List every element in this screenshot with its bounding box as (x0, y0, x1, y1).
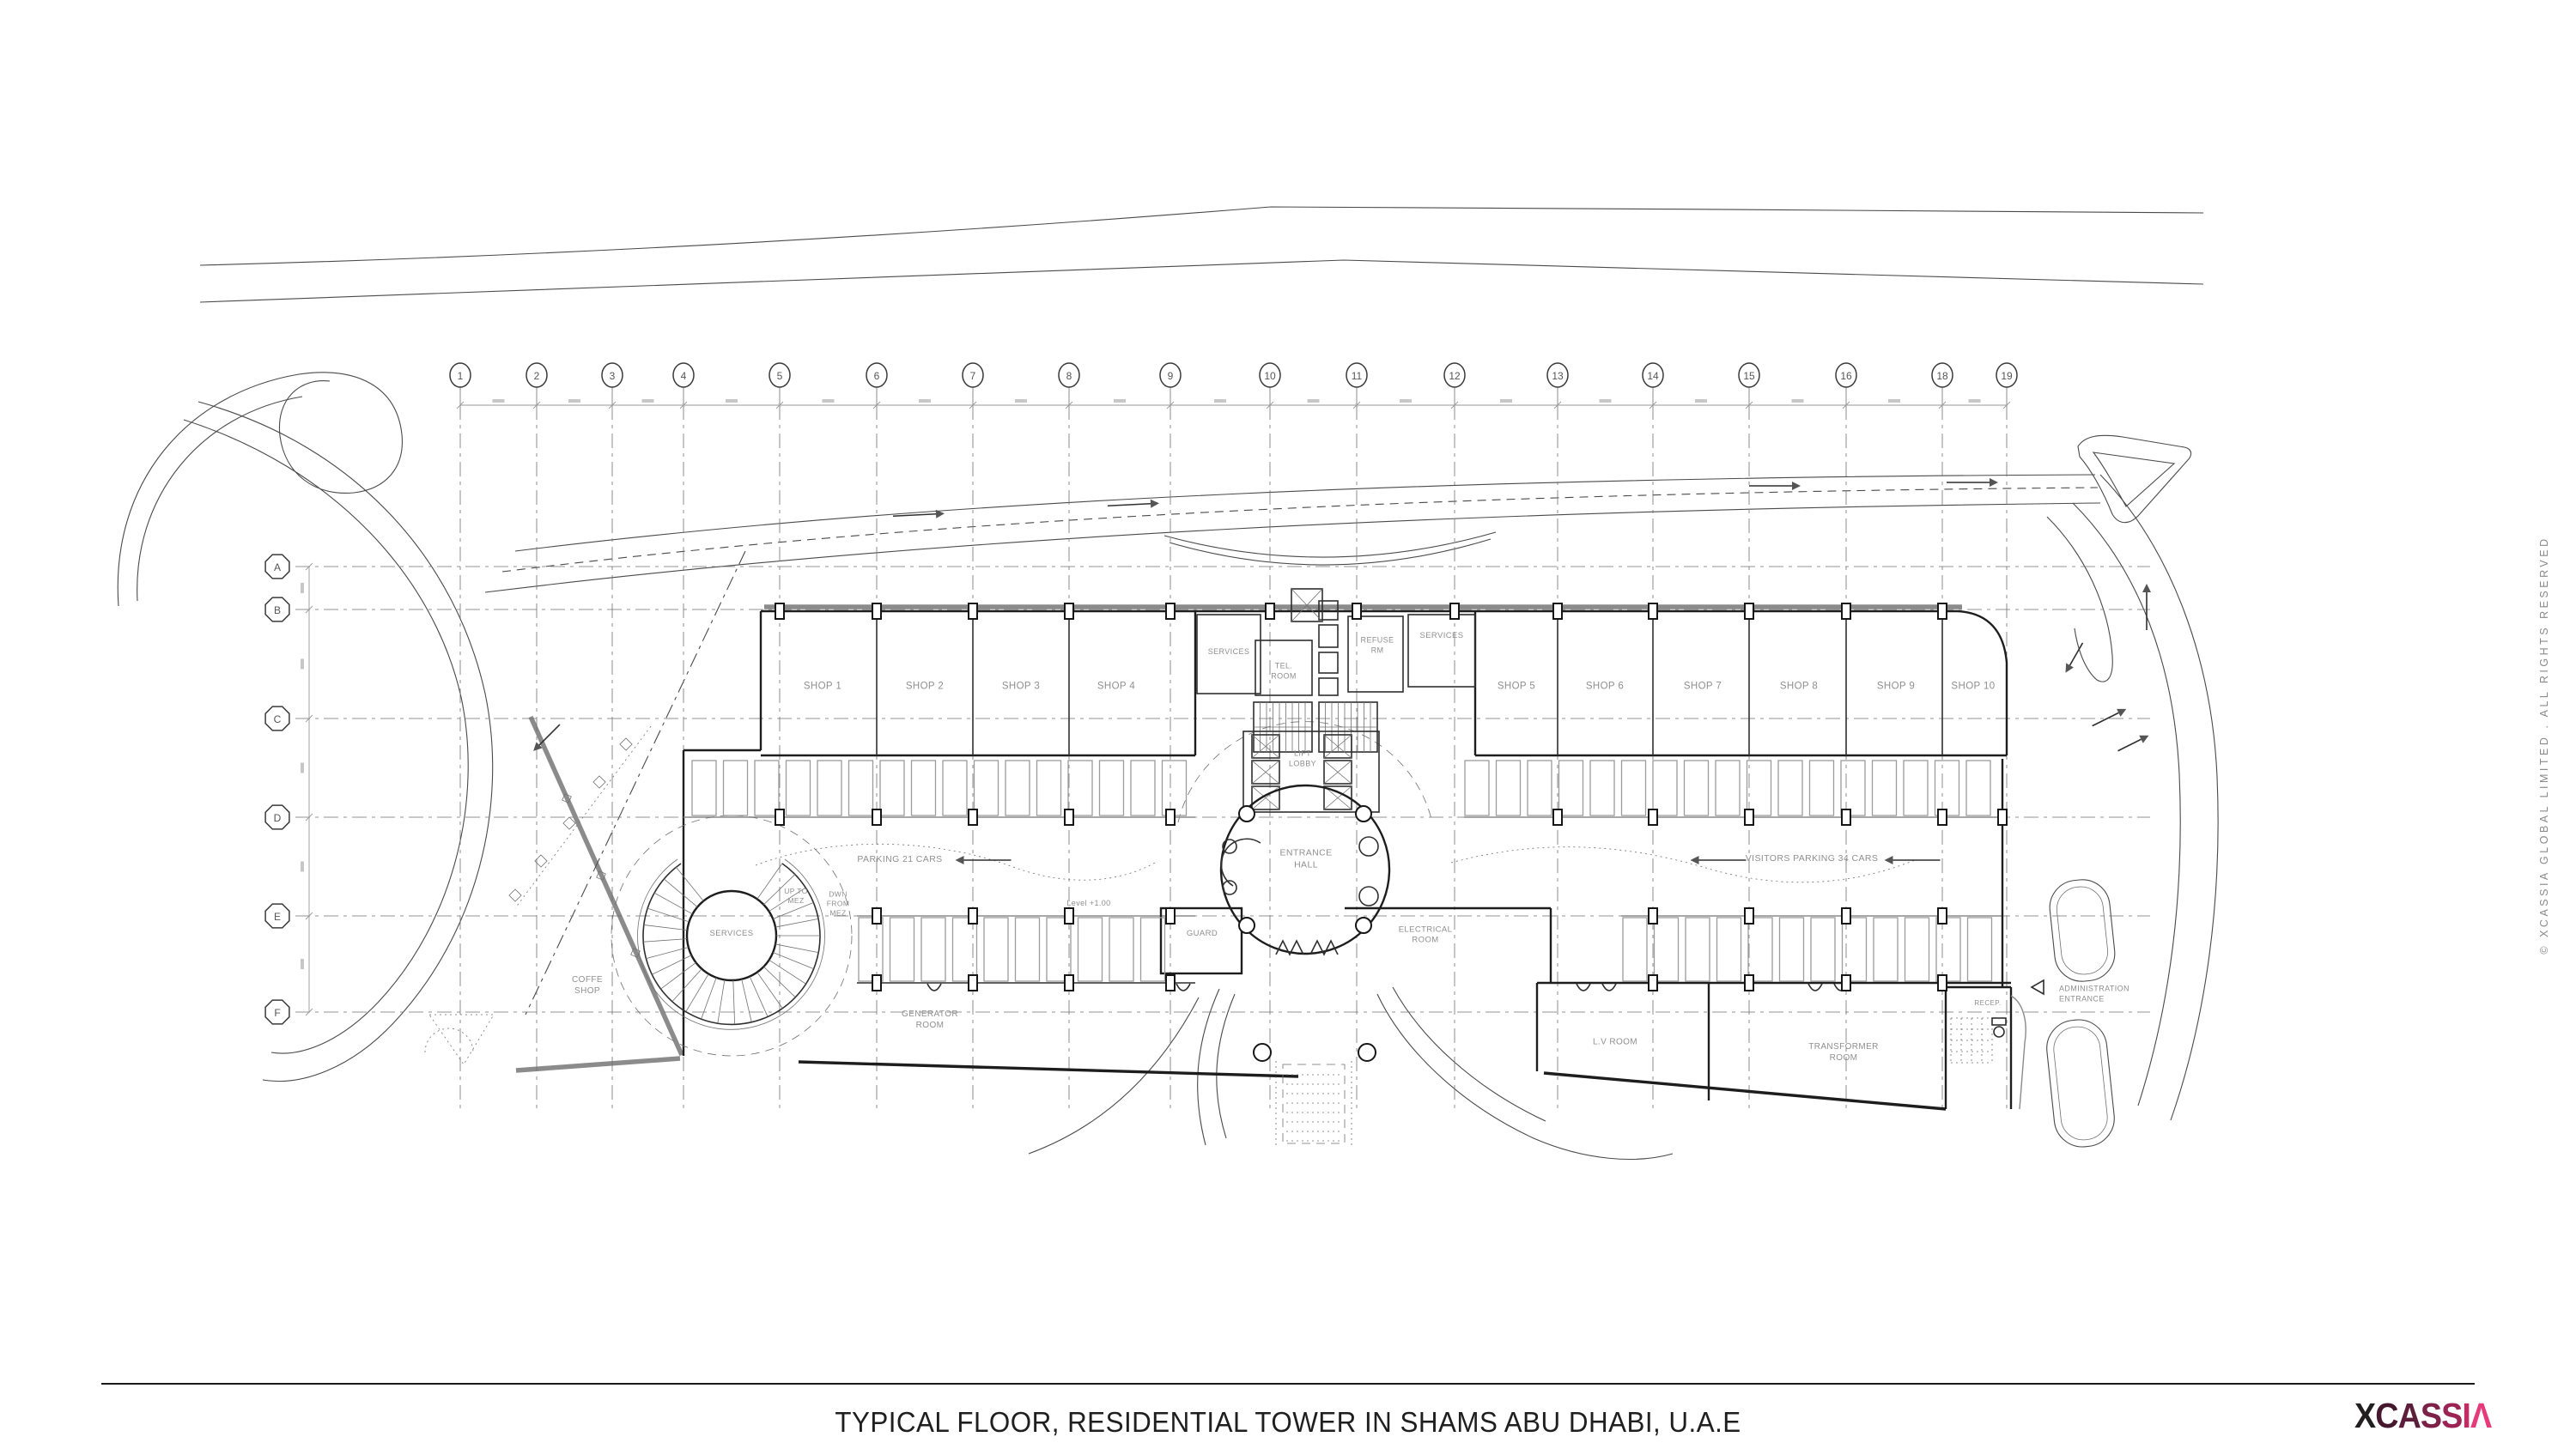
grid-column-bubble: 3 (610, 370, 616, 382)
footer-divider (101, 1383, 2475, 1385)
grid-rows: ABCDEF (265, 555, 2150, 1024)
reception-detail (1951, 980, 2044, 1064)
grid-row-bubble: D (274, 812, 282, 824)
grid-column-bubble: 16 (1840, 370, 1852, 382)
grid-column-bubble: 8 (1066, 370, 1072, 382)
grid-column-bubble: 18 (1936, 370, 1948, 382)
grid-column-bubble: 19 (2001, 370, 2013, 382)
brand-logo-char: X (2354, 1396, 2375, 1435)
building-walls (683, 607, 2026, 1109)
grid-column-bubble: 13 (1552, 370, 1564, 382)
parking-stalls (692, 761, 1992, 991)
column-markers (775, 603, 2007, 991)
brand-logo-char: C (2375, 1396, 2397, 1435)
grid-row-bubble: C (274, 713, 282, 725)
grid-column-bubble: 7 (970, 370, 976, 382)
spiral-stair (611, 815, 852, 1056)
grid-column-bubble: 11 (1352, 370, 1363, 382)
site-roads (118, 207, 2218, 1159)
brand-logo-char: S (2441, 1396, 2462, 1435)
brand-logo-char: S (2421, 1396, 2441, 1435)
sheet-title: TYPICAL FLOOR, RESIDENTIAL TOWER IN SHAM… (835, 1406, 1741, 1439)
grid-row-bubble: E (274, 911, 281, 923)
grid-column-bubble: 15 (1743, 370, 1755, 382)
grid-column-bubble: 9 (1168, 370, 1174, 382)
grid-column-bubble: 6 (874, 370, 880, 382)
drawing-sheet: 123456789101112131415161819ABCDEF SHOP 1… (0, 0, 2576, 1449)
brand-logo-char: Λ (2470, 1396, 2491, 1435)
grid-column-bubble: 10 (1264, 370, 1276, 382)
grid-row-bubble: A (274, 561, 281, 573)
grid-column-bubble: 5 (777, 370, 783, 382)
grid-column-bubble: 12 (1449, 370, 1461, 382)
grid-column-bubble: 2 (534, 370, 540, 382)
grid-row-bubble: F (274, 1007, 280, 1019)
brand-logo-char: A (2398, 1396, 2421, 1435)
grid-column-bubble: 4 (681, 370, 687, 382)
admin-entrance-arrow-icon (2032, 980, 2044, 994)
grid-column-bubble: 1 (458, 370, 464, 382)
grid-column-bubble: 14 (1647, 370, 1659, 382)
brand-logo-char: I (2462, 1396, 2470, 1435)
grid-row-bubble: B (274, 604, 281, 616)
entrance-hall (1221, 785, 1389, 1147)
flow-arrows (533, 478, 2151, 864)
floor-plan-drawing: 123456789101112131415161819ABCDEF (0, 0, 2576, 1449)
brand-logo: XCASSIΛ (2354, 1396, 2491, 1436)
copyright-text: © XCASSIA GLOBAL LIMITED . ALL RIGHTS RE… (2538, 536, 2550, 954)
core-rooms (1197, 589, 1475, 812)
